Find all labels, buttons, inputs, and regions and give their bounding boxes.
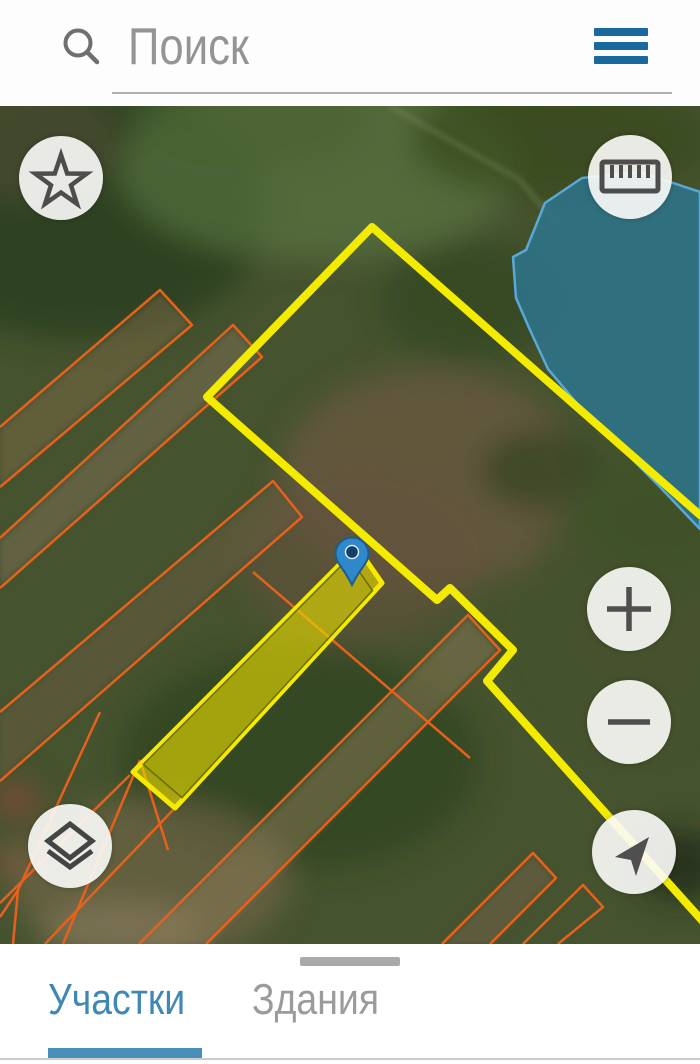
- search-bar: [0, 0, 700, 106]
- bottom-sheet: Участки Здания: [0, 944, 700, 1064]
- ruler-icon: [588, 135, 672, 219]
- app-screen: Участки Здания: [0, 0, 700, 1064]
- zoom-out-icon: [587, 680, 671, 764]
- compass-arrow-icon: [592, 810, 676, 894]
- map-view[interactable]: [0, 106, 700, 944]
- layers-icon: [28, 804, 112, 888]
- drag-handle[interactable]: [300, 957, 400, 966]
- search-icon[interactable]: [58, 24, 104, 70]
- menu-icon[interactable]: [594, 28, 648, 64]
- my-location-button[interactable]: [592, 810, 676, 894]
- search-input[interactable]: [128, 14, 414, 80]
- sheet-divider: [0, 1058, 700, 1060]
- measure-button[interactable]: [588, 135, 672, 219]
- layers-button[interactable]: [28, 804, 112, 888]
- star-icon: [19, 136, 103, 220]
- favorites-button[interactable]: [19, 136, 103, 220]
- zoom-in-button[interactable]: [587, 567, 671, 651]
- tab-parcels[interactable]: Участки: [48, 978, 185, 1022]
- active-tab-indicator: [48, 1048, 202, 1058]
- zoom-out-button[interactable]: [587, 680, 671, 764]
- tab-buildings[interactable]: Здания: [252, 978, 379, 1022]
- search-underline: [112, 92, 672, 94]
- zoom-in-icon: [587, 567, 671, 651]
